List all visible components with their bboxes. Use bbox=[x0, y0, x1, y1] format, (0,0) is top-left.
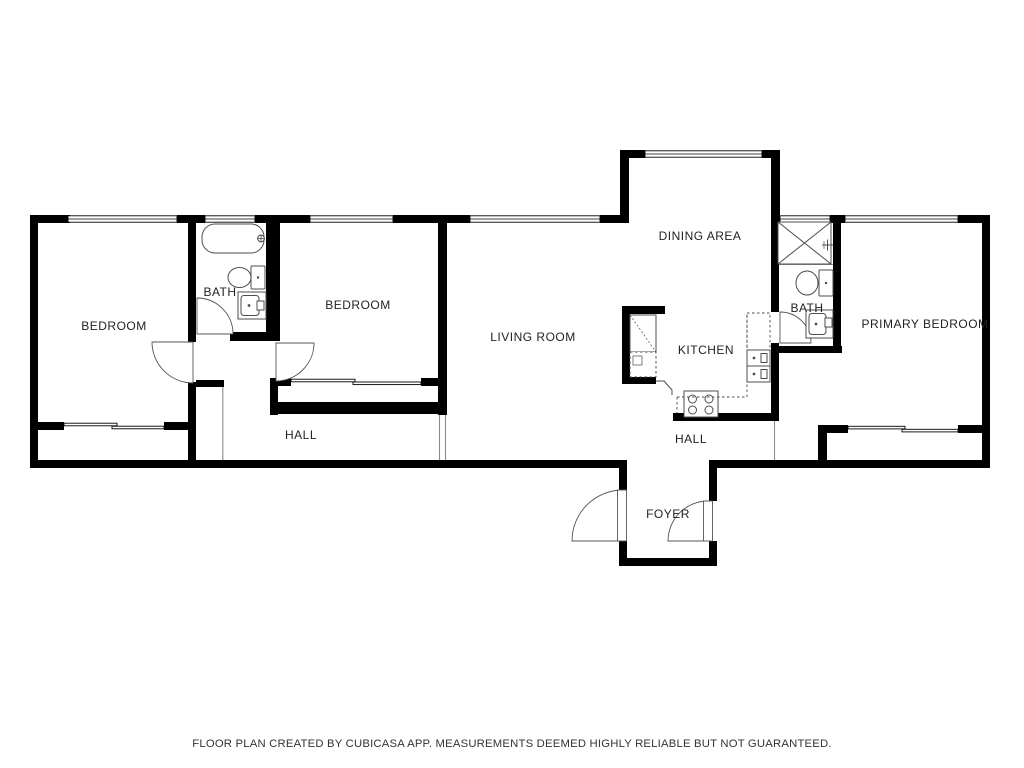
floor-plan-page: BEDROOM BATH BEDROOM LIVING ROOM DINING … bbox=[0, 0, 1024, 768]
wall bbox=[982, 215, 990, 468]
door-arc bbox=[276, 343, 314, 381]
door-leaf bbox=[704, 501, 713, 541]
floor-plan: BEDROOM BATH BEDROOM LIVING ROOM DINING … bbox=[0, 0, 1024, 768]
sliding-window bbox=[291, 379, 421, 384]
room-label-foyer: FOYER bbox=[646, 507, 690, 521]
wall bbox=[270, 402, 446, 414]
sink-icon bbox=[238, 292, 266, 319]
window bbox=[780, 216, 830, 222]
room-label-dining-area: DINING AREA bbox=[659, 229, 742, 243]
door-arc bbox=[197, 298, 233, 334]
wall bbox=[717, 460, 990, 468]
room-label-primary-bedroom: PRIMARY BEDROOM bbox=[861, 317, 988, 331]
wall bbox=[762, 150, 780, 158]
wall bbox=[188, 215, 196, 342]
wall bbox=[393, 215, 470, 223]
wall bbox=[771, 150, 780, 223]
wall bbox=[771, 343, 779, 413]
wall bbox=[255, 215, 310, 223]
stove-icon bbox=[684, 391, 718, 417]
room-label-kitchen: KITCHEN bbox=[678, 343, 734, 357]
wall bbox=[958, 425, 982, 433]
room-label-bath-2: BATH bbox=[790, 301, 823, 315]
room-labels: BEDROOM BATH BEDROOM LIVING ROOM DINING … bbox=[81, 229, 988, 521]
closet-x-icon bbox=[778, 222, 831, 264]
wall bbox=[620, 150, 629, 223]
cabinet bbox=[630, 315, 656, 377]
wall bbox=[438, 215, 447, 415]
wall bbox=[619, 558, 717, 566]
window bbox=[68, 216, 177, 222]
counter-corner bbox=[656, 381, 672, 395]
wall bbox=[709, 460, 717, 501]
room-label-hall-west: HALL bbox=[285, 428, 317, 442]
room-label-bath-1: BATH bbox=[203, 285, 236, 299]
wall bbox=[709, 541, 717, 558]
door-arc bbox=[152, 342, 193, 383]
room-label-living-room: LIVING ROOM bbox=[490, 330, 576, 344]
wall bbox=[30, 422, 64, 430]
kitchen-sink-icon bbox=[747, 350, 770, 382]
wall bbox=[30, 460, 619, 468]
door-leaf bbox=[618, 490, 627, 541]
washer-hookup-icon bbox=[822, 240, 833, 251]
wall bbox=[619, 460, 627, 490]
wall bbox=[622, 306, 630, 384]
room-label-bedroom-1: BEDROOM bbox=[81, 319, 147, 333]
toilet-icon bbox=[796, 270, 833, 296]
window bbox=[205, 216, 255, 222]
wall bbox=[818, 425, 827, 462]
wall bbox=[30, 215, 38, 468]
window bbox=[645, 151, 762, 157]
disclaimer-text: FLOOR PLAN CREATED BY CUBICASA APP. MEAS… bbox=[192, 738, 831, 750]
sliding-window bbox=[64, 423, 164, 429]
wall bbox=[266, 215, 280, 341]
window bbox=[310, 216, 393, 222]
wall bbox=[196, 380, 224, 387]
window bbox=[845, 216, 958, 222]
wall bbox=[833, 215, 841, 352]
window bbox=[470, 216, 600, 222]
room-label-bedroom-2: BEDROOM bbox=[325, 298, 391, 312]
wall bbox=[164, 422, 190, 430]
fixtures bbox=[202, 222, 833, 417]
wall bbox=[620, 150, 645, 158]
room-label-hall-east: HALL bbox=[675, 432, 707, 446]
wall bbox=[779, 346, 842, 353]
bathtub-icon bbox=[202, 224, 265, 253]
door-arc bbox=[572, 490, 623, 541]
sliding-window bbox=[848, 426, 958, 432]
